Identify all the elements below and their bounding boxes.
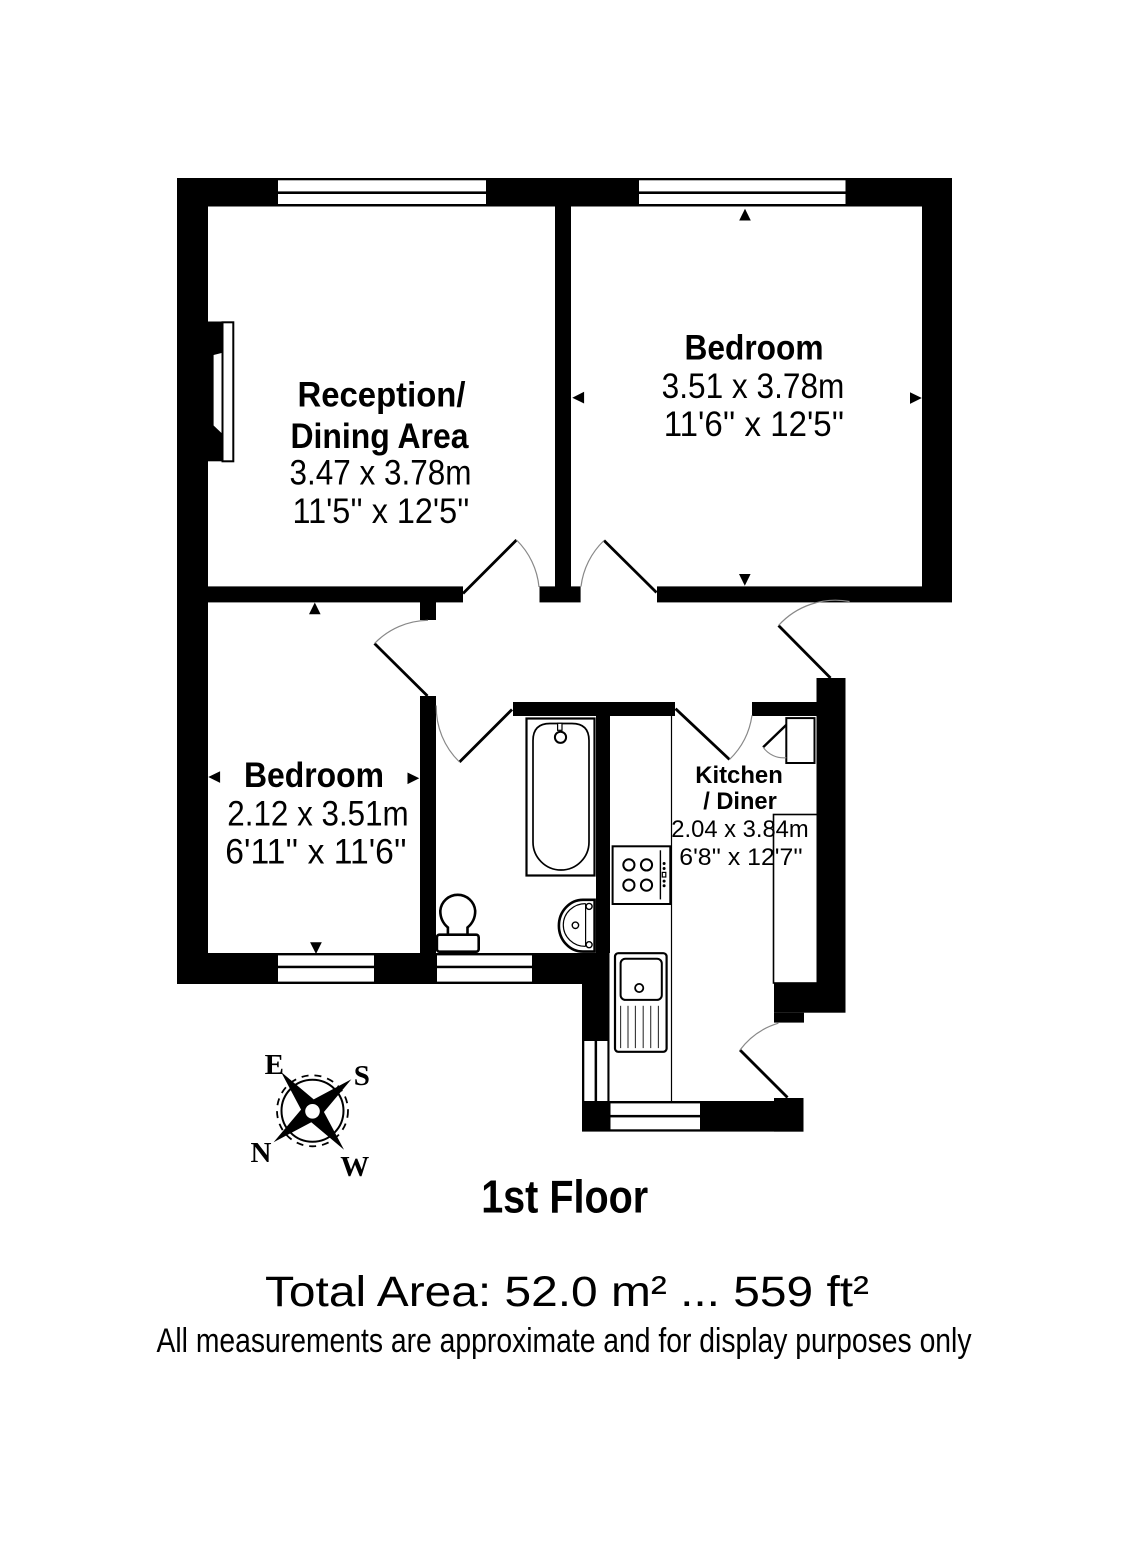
svg-text:6'11'' x 11'6'': 6'11'' x 11'6'' bbox=[225, 833, 406, 872]
svg-text:S: S bbox=[354, 1060, 370, 1092]
svg-text:Dining Area: Dining Area bbox=[291, 417, 469, 456]
svg-text:All measurements are approxima: All measurements are approximate and for… bbox=[157, 1322, 972, 1360]
svg-text:2.12 x 3.51m: 2.12 x 3.51m bbox=[227, 795, 408, 834]
svg-text:N: N bbox=[251, 1137, 272, 1169]
svg-text:3.51 x 3.78m: 3.51 x 3.78m bbox=[662, 367, 845, 406]
svg-text:Bedroom: Bedroom bbox=[685, 329, 824, 368]
svg-text:11'5'' x 12'5'': 11'5'' x 12'5'' bbox=[293, 492, 470, 531]
svg-text:E: E bbox=[265, 1049, 284, 1081]
svg-text:/ Diner: / Diner bbox=[703, 788, 777, 815]
svg-text:Total Area: 52.0 m² ... 559 ft: Total Area: 52.0 m² ... 559 ft² bbox=[265, 1268, 869, 1316]
svg-text:1st Floor: 1st Floor bbox=[481, 1170, 648, 1222]
svg-text:11'6'' x 12'5'': 11'6'' x 12'5'' bbox=[664, 405, 845, 444]
svg-text:6'8'' x 12'7'': 6'8'' x 12'7'' bbox=[679, 844, 802, 871]
svg-text:2.04 x 3.84m: 2.04 x 3.84m bbox=[671, 816, 808, 843]
svg-text:3.47 x 3.78m: 3.47 x 3.78m bbox=[290, 454, 472, 493]
svg-text:Reception/: Reception/ bbox=[298, 376, 466, 415]
svg-text:W: W bbox=[340, 1151, 369, 1183]
svg-text:Kitchen: Kitchen bbox=[695, 762, 783, 789]
svg-text:Bedroom: Bedroom bbox=[244, 756, 384, 795]
